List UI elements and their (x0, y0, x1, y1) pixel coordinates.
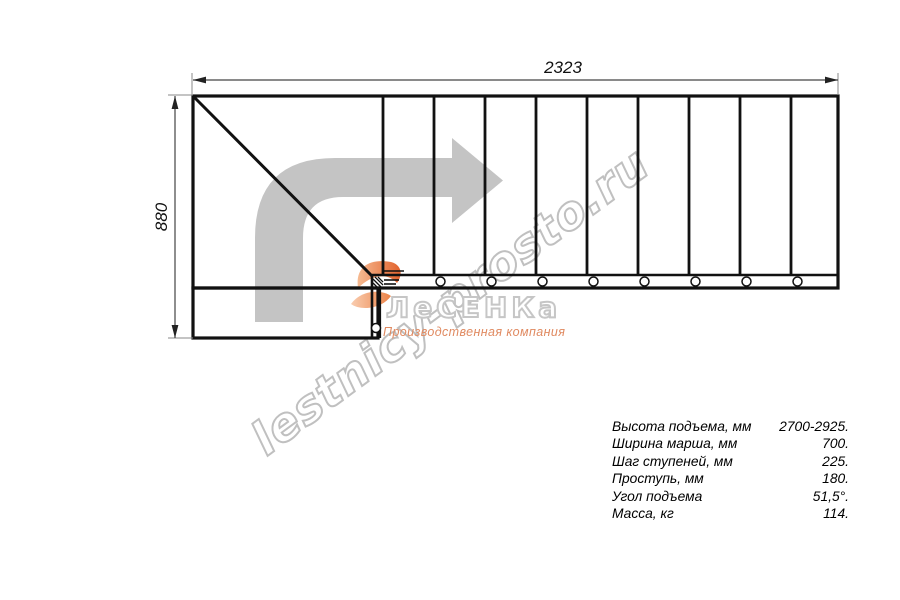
spec-row-tread: Проступь, мм 180. (612, 470, 849, 487)
winder-diagonal-line (194, 97, 372, 276)
spec-label: Проступь, мм (612, 470, 704, 487)
spec-label: Высота подъема, мм (612, 418, 751, 435)
spec-row-mass: Масса, кг 114. (612, 505, 849, 522)
spec-value: 225. (822, 453, 849, 470)
spec-label: Шаг ступеней, мм (612, 453, 733, 470)
width-dimension-label: 2323 (544, 58, 582, 78)
first-step-detail (383, 271, 404, 284)
height-dimension-label: 880 (152, 203, 172, 231)
spec-label: Масса, кг (612, 505, 674, 522)
fastener-circles (372, 277, 803, 333)
spec-value: 51,5°. (813, 488, 849, 505)
step-divider-lines (383, 96, 791, 275)
specs-table: Высота подъема, мм 2700-2925. Ширина мар… (612, 418, 849, 522)
spec-row-height: Высота подъема, мм 2700-2925. (612, 418, 849, 435)
spec-row-step-rise: Шаг ступеней, мм 225. (612, 453, 849, 470)
spec-label: Ширина марша, мм (612, 435, 737, 452)
spec-row-angle: Угол подъема 51,5°. (612, 488, 849, 505)
lower-flight-outline (193, 288, 378, 338)
spec-row-flight-width: Ширина марша, мм 700. (612, 435, 849, 452)
staircase-drawing-page: lestnicy-prosto.ru ЛеСЕНКа Производствен… (0, 0, 900, 600)
spec-value: 2700-2925. (779, 418, 849, 435)
dimension-lines (168, 73, 838, 338)
corner-hatch (373, 277, 383, 288)
dimension-arrowheads (172, 77, 838, 338)
spec-value: 180. (822, 470, 849, 487)
spec-label: Угол подъема (612, 488, 702, 505)
spec-value: 114. (823, 505, 849, 522)
spec-value: 700. (822, 435, 849, 452)
